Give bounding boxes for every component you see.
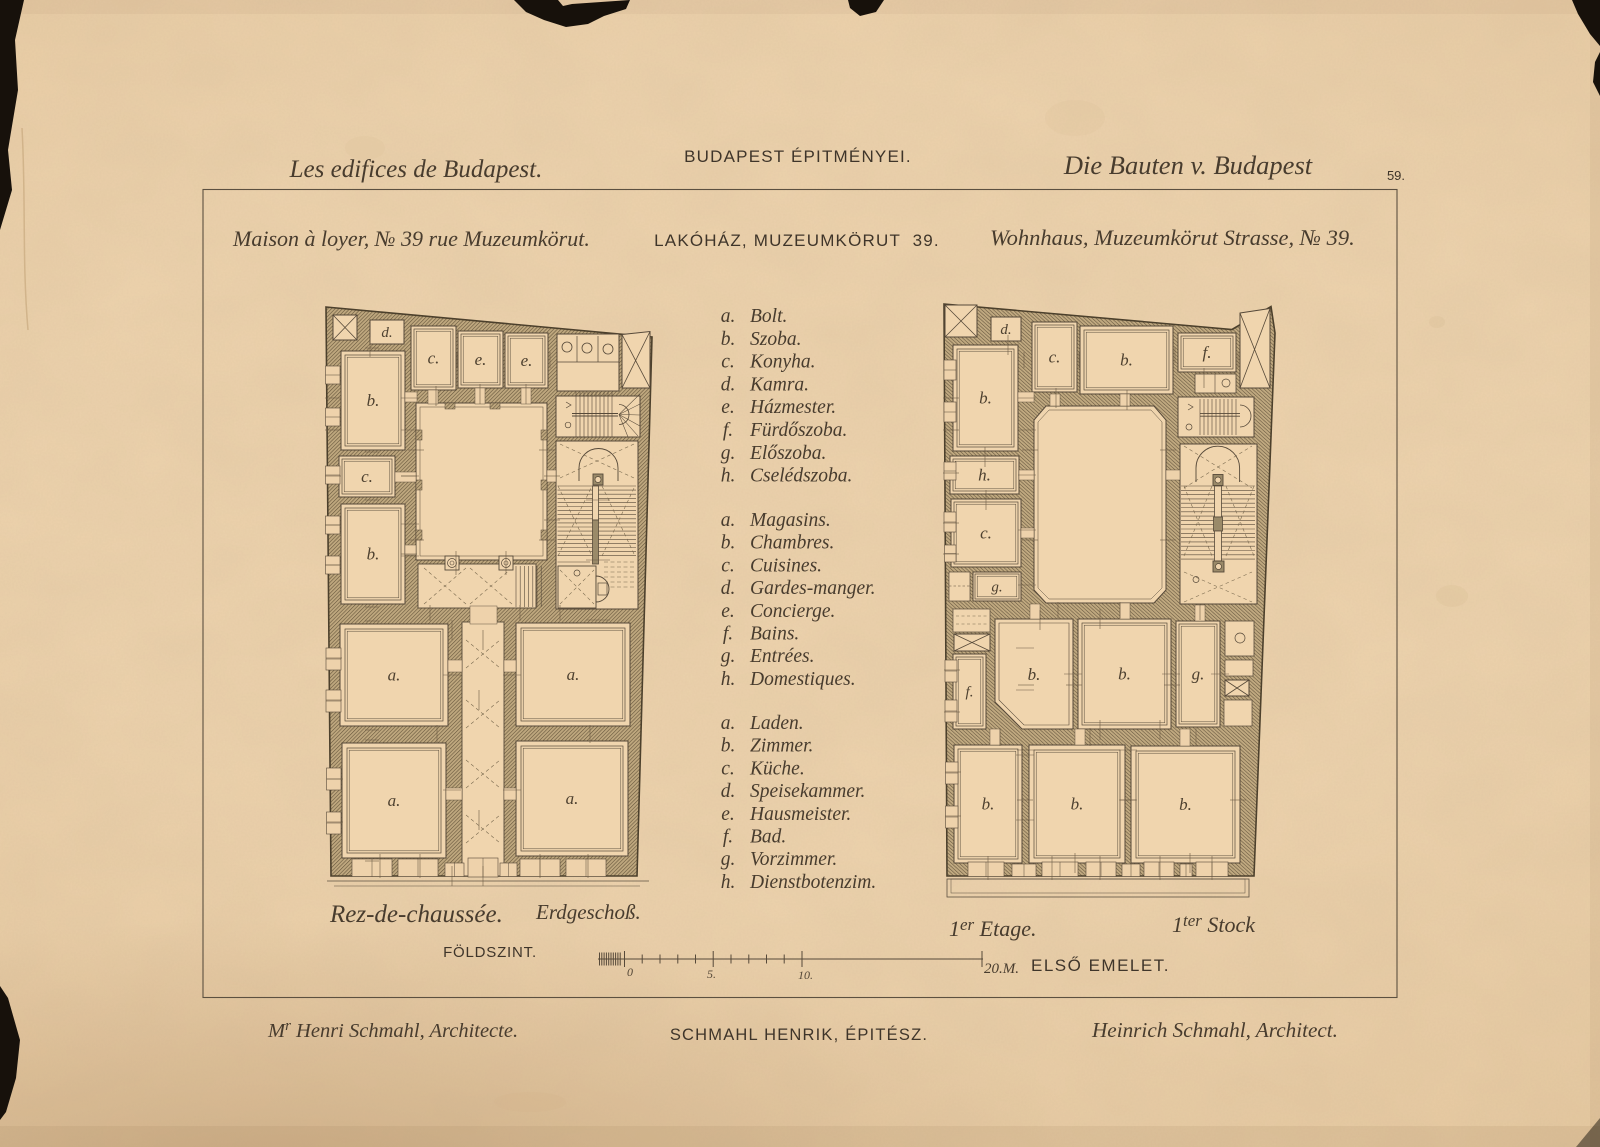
svg-text:Bolt.: Bolt.: [750, 306, 787, 327]
svg-text:5.: 5.: [707, 967, 716, 981]
svg-text:Chambres.: Chambres.: [750, 533, 834, 554]
svg-text:10.: 10.: [798, 968, 813, 982]
svg-text:Fürdőszoba.: Fürdőszoba.: [749, 420, 847, 441]
svg-text:20.M.: 20.M.: [984, 961, 1019, 977]
svg-text:e.: e.: [521, 351, 533, 370]
svg-text:b.: b.: [1179, 795, 1192, 814]
svg-text:a.: a.: [566, 789, 579, 808]
svg-text:d.: d.: [1000, 322, 1011, 338]
svg-text:f.: f.: [723, 624, 733, 645]
svg-text:b.: b.: [982, 794, 995, 813]
svg-text:Heinrich Schmahl, Architect.: Heinrich Schmahl, Architect.: [1091, 1018, 1338, 1042]
svg-text:Speisekammer.: Speisekammer.: [750, 781, 865, 802]
svg-text:Concierge.: Concierge.: [750, 601, 835, 622]
svg-text:SCHMAHL HENRIK, ÉPITÉSZ.: SCHMAHL HENRIK, ÉPITÉSZ.: [670, 1025, 928, 1044]
svg-text:a.: a.: [721, 713, 736, 734]
svg-text:e.: e.: [475, 350, 487, 369]
svg-text:d.: d.: [721, 781, 736, 802]
svg-text:c.: c.: [428, 348, 440, 367]
svg-text:ELSŐ EMELET.: ELSŐ EMELET.: [1031, 956, 1170, 975]
svg-text:Bains.: Bains.: [750, 624, 799, 645]
svg-text:c.: c.: [721, 555, 735, 576]
svg-text:b.: b.: [979, 388, 992, 407]
svg-text:a.: a.: [388, 665, 401, 684]
svg-text:c.: c.: [721, 352, 735, 373]
svg-text:59.: 59.: [1387, 168, 1405, 183]
svg-text:h.: h.: [721, 669, 736, 690]
svg-text:Les edifices de Budapest.: Les edifices de Budapest.: [289, 156, 543, 183]
svg-text:LAKÓHÁZ, MUZEUMKÖRUT 39.: LAKÓHÁZ, MUZEUMKÖRUT 39.: [654, 231, 940, 250]
svg-text:h.: h.: [721, 872, 736, 893]
svg-text:b.: b.: [1118, 664, 1131, 683]
svg-text:Bad.: Bad.: [750, 827, 786, 848]
svg-text:a.: a.: [388, 791, 401, 810]
svg-text:0: 0: [627, 965, 633, 979]
svg-text:e.: e.: [721, 804, 735, 825]
svg-text:g.: g.: [721, 849, 736, 870]
svg-text:Die Bauten v. Budapest: Die Bauten v. Budapest: [1063, 150, 1313, 180]
svg-text:Cuisines.: Cuisines.: [750, 555, 822, 576]
svg-text:Konyha.: Konyha.: [749, 352, 816, 373]
svg-text:d.: d.: [721, 578, 736, 599]
svg-text:b.: b.: [1071, 794, 1084, 813]
svg-text:a.: a.: [567, 665, 580, 684]
svg-text:b.: b.: [721, 329, 736, 350]
svg-text:g.: g.: [991, 579, 1002, 595]
svg-text:Rez-de-chaussée.: Rez-de-chaussée.: [329, 901, 503, 928]
svg-text:f.: f.: [966, 684, 974, 700]
svg-text:c.: c.: [721, 758, 735, 779]
svg-text:g.: g.: [1192, 664, 1205, 683]
svg-text:Mr Henri Schmahl, Architecte.: Mr Henri Schmahl, Architecte.: [267, 1018, 518, 1042]
svg-text:g.: g.: [721, 646, 736, 667]
svg-text:Entrées.: Entrées.: [749, 646, 814, 667]
svg-text:d.: d.: [381, 325, 392, 341]
svg-text:a.: a.: [721, 306, 736, 327]
svg-text:h.: h.: [978, 465, 991, 484]
svg-text:BUDAPEST ÉPITMÉNYEI.: BUDAPEST ÉPITMÉNYEI.: [684, 147, 912, 166]
svg-text:b.: b.: [367, 544, 380, 563]
svg-text:Maison à loyer, № 39 rue Muzeu: Maison à loyer, № 39 rue Muzeumkörut.: [232, 226, 590, 251]
svg-text:e.: e.: [721, 397, 735, 418]
svg-text:c.: c.: [1049, 347, 1061, 366]
svg-text:Cselédszoba.: Cselédszoba.: [750, 466, 852, 487]
svg-text:FÖLDSZINT.: FÖLDSZINT.: [443, 943, 537, 961]
svg-text:f.: f.: [723, 827, 733, 848]
svg-text:Hausmeister.: Hausmeister.: [749, 804, 851, 825]
svg-text:Házmester.: Házmester.: [749, 397, 836, 418]
svg-text:f.: f.: [1203, 343, 1212, 362]
svg-text:g.: g.: [721, 443, 736, 464]
svg-text:Gardes-manger.: Gardes-manger.: [750, 578, 875, 599]
svg-text:Zimmer.: Zimmer.: [750, 736, 813, 757]
svg-text:Erdgeschoß.: Erdgeschoß.: [535, 900, 641, 924]
svg-text:b.: b.: [367, 391, 380, 410]
svg-text:Szoba.: Szoba.: [750, 329, 801, 350]
svg-text:a.: a.: [721, 510, 736, 531]
svg-text:Magasins.: Magasins.: [749, 510, 831, 531]
svg-text:Küche.: Küche.: [749, 758, 805, 779]
svg-text:c.: c.: [980, 523, 992, 542]
svg-text:b.: b.: [721, 533, 736, 554]
svg-text:Kamra.: Kamra.: [749, 374, 809, 395]
svg-text:Wohnhaus, Muzeumkörut Strasse,: Wohnhaus, Muzeumkörut Strasse, № 39.: [990, 225, 1355, 250]
svg-text:Dienstbotenzim.: Dienstbotenzim.: [749, 872, 876, 893]
svg-text:h.: h.: [721, 466, 736, 487]
svg-text:b.: b.: [721, 736, 736, 757]
svg-text:e.: e.: [721, 601, 735, 622]
svg-text:b.: b.: [1120, 350, 1133, 369]
svg-text:c.: c.: [361, 467, 373, 486]
svg-text:Vorzimmer.: Vorzimmer.: [750, 849, 837, 870]
svg-text:f.: f.: [723, 420, 733, 441]
svg-text:Laden.: Laden.: [749, 713, 804, 734]
svg-text:d.: d.: [721, 374, 736, 395]
svg-text:Domestiques.: Domestiques.: [749, 669, 856, 690]
svg-text:Előszoba.: Előszoba.: [749, 443, 826, 464]
svg-text:b.: b.: [1028, 665, 1041, 684]
